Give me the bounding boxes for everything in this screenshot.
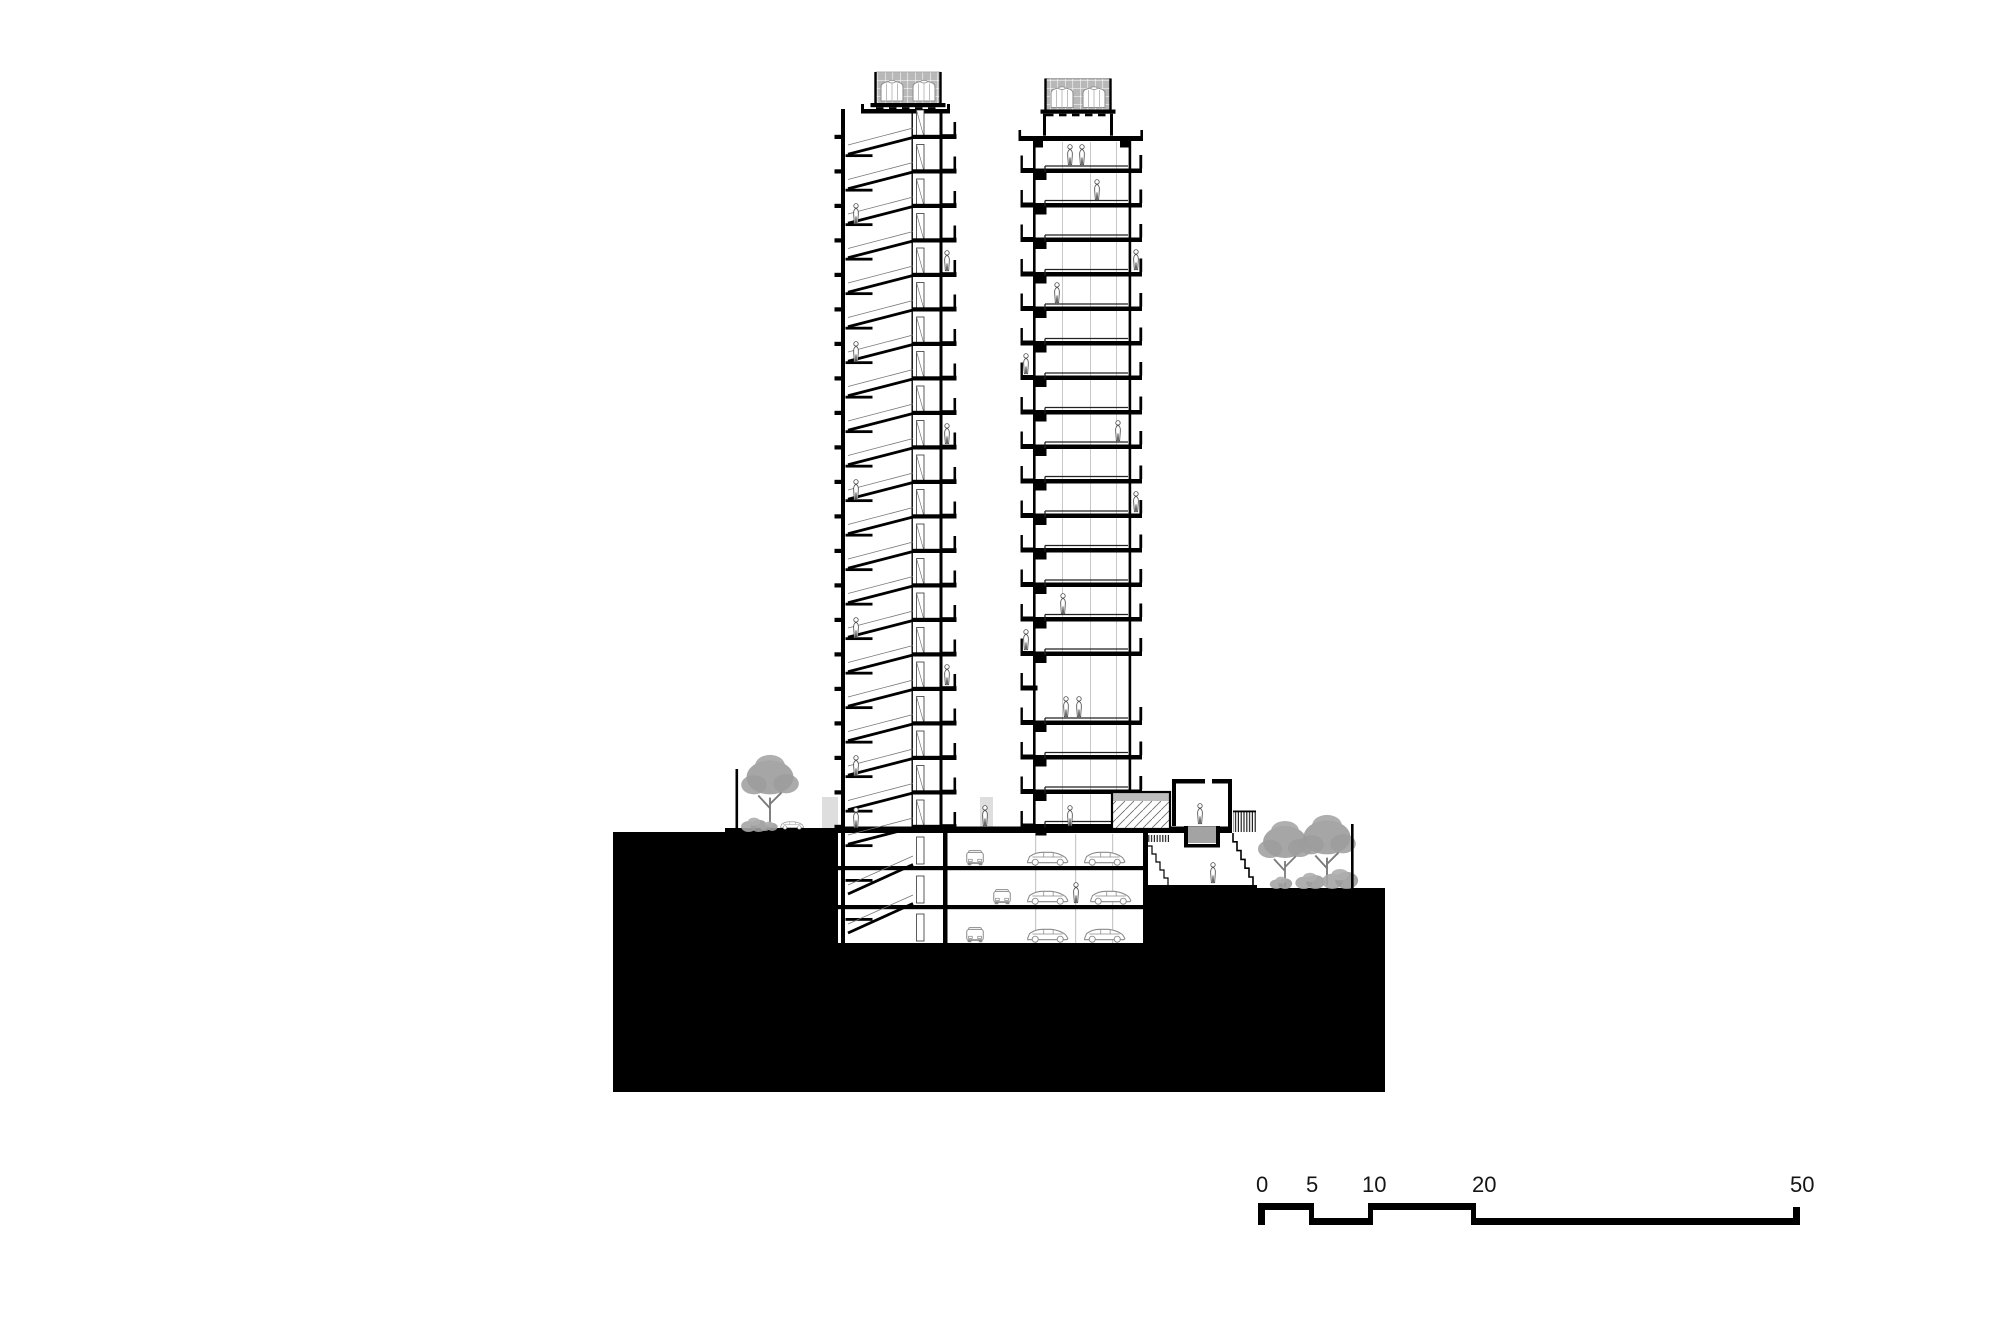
scale-label-20: 20 [1472,1174,1496,1196]
left-tower [835,104,957,943]
right-roof-water-tanks [1041,79,1116,136]
section-drawing [0,0,2000,1333]
architectural-section-sheet: 0 5 10 20 50 [0,0,2000,1333]
scale-bar [1258,1203,1800,1225]
scale-label-50: 50 [1790,1174,1814,1196]
scale-label-0: 0 [1256,1174,1268,1196]
basement-parking [838,834,1143,943]
scale-label-5: 5 [1306,1174,1318,1196]
right-tower [1019,130,1144,836]
scale-label-10: 10 [1362,1174,1386,1196]
left-roof-water-tanks [871,72,946,110]
